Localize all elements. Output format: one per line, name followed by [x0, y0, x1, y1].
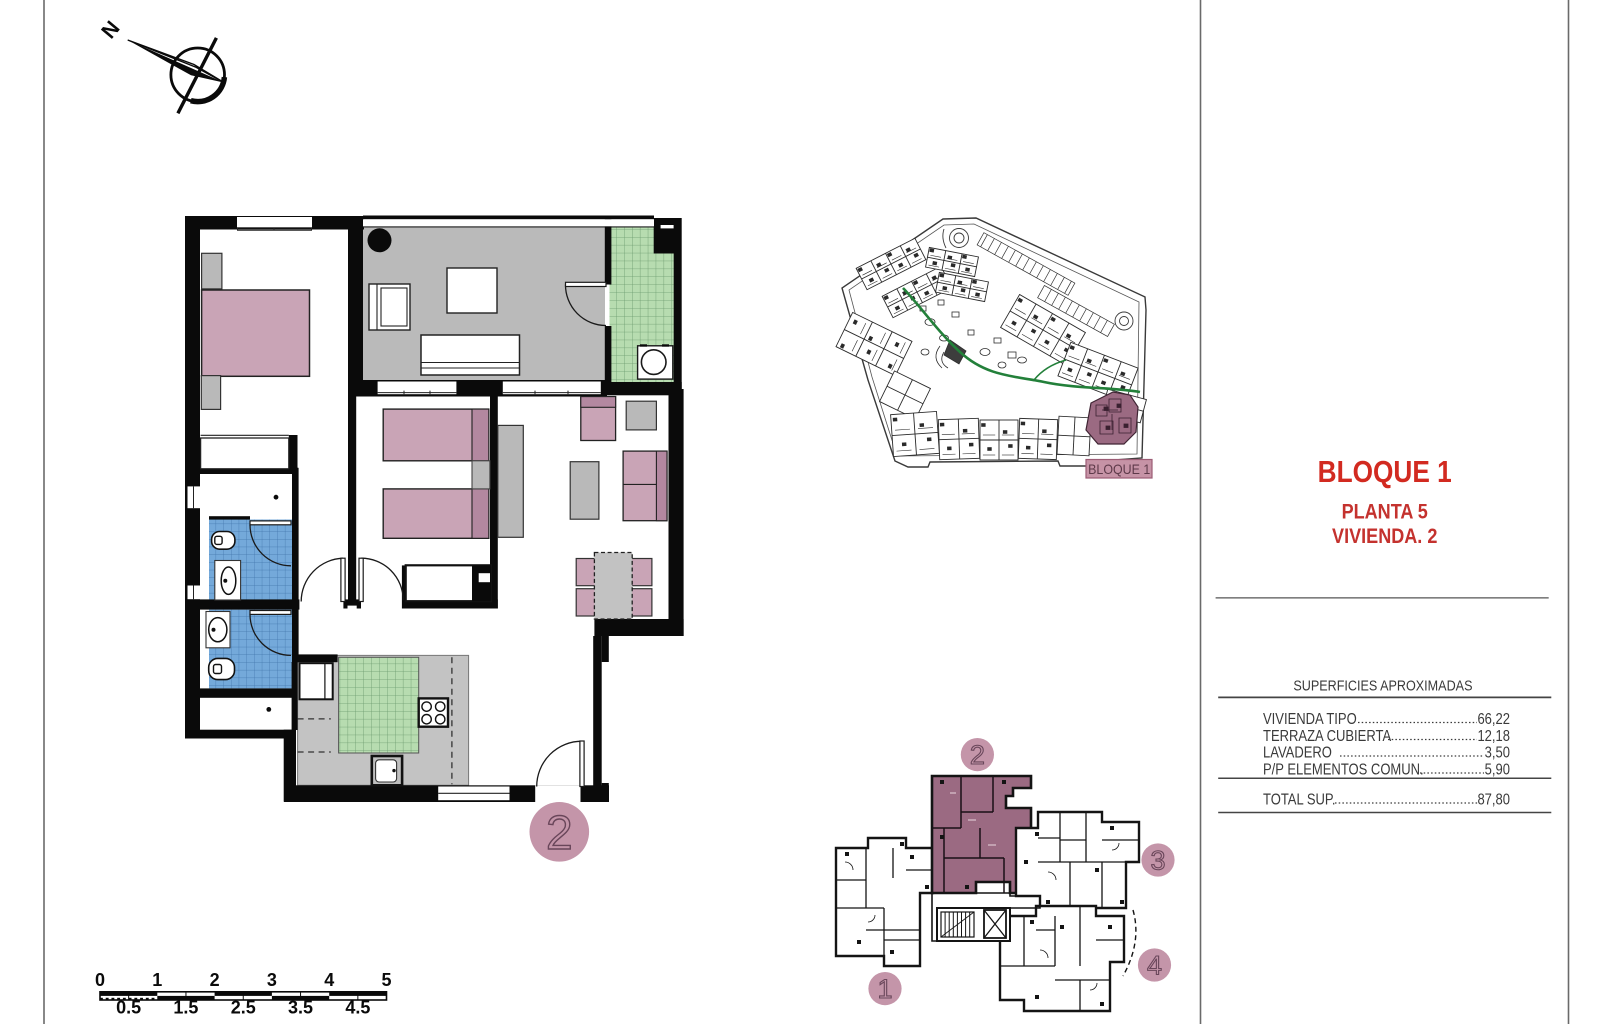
svg-text:TOTAL SUP.: TOTAL SUP.	[1263, 792, 1336, 809]
svg-text:VIVIENDA. 2: VIVIENDA. 2	[1332, 524, 1437, 548]
svg-text:3: 3	[267, 970, 277, 990]
svg-text:87,80: 87,80	[1477, 792, 1510, 809]
svg-text:TERRAZA CUBIERTA: TERRAZA CUBIERTA	[1263, 728, 1392, 745]
svg-text:VIVIENDA TIPO: VIVIENDA TIPO	[1263, 711, 1357, 728]
svg-text:2: 2	[546, 807, 573, 860]
svg-text:3: 3	[1150, 846, 1165, 876]
svg-text:LAVADERO: LAVADERO	[1263, 745, 1332, 762]
svg-text:2: 2	[210, 970, 220, 990]
svg-text:5: 5	[381, 970, 391, 990]
svg-text:BLOQUE 1: BLOQUE 1	[1318, 455, 1452, 489]
svg-text:1: 1	[877, 974, 892, 1004]
svg-text:5,90: 5,90	[1485, 762, 1510, 779]
svg-text:3.5: 3.5	[288, 998, 313, 1018]
svg-text:BLOQUE 1: BLOQUE 1	[1088, 461, 1150, 477]
svg-text:2.5: 2.5	[231, 998, 256, 1018]
svg-text:0.5: 0.5	[116, 998, 141, 1018]
svg-text:P/P ELEMENTOS COMUN.: P/P ELEMENTOS COMUN.	[1263, 762, 1424, 779]
svg-text:4.5: 4.5	[345, 998, 370, 1018]
svg-text:PLANTA 5: PLANTA 5	[1342, 500, 1428, 524]
svg-text:SUPERFICIES APROXIMADAS: SUPERFICIES APROXIMADAS	[1293, 677, 1472, 694]
svg-text:1: 1	[152, 970, 162, 990]
svg-text:4: 4	[1147, 951, 1162, 981]
svg-text:12,18: 12,18	[1477, 728, 1510, 745]
svg-text:3,50: 3,50	[1485, 745, 1510, 762]
svg-text:4: 4	[324, 970, 334, 990]
svg-text:1.5: 1.5	[173, 998, 198, 1018]
svg-text:2: 2	[970, 740, 985, 770]
svg-text:66,22: 66,22	[1477, 711, 1510, 728]
svg-text:0: 0	[95, 970, 105, 990]
